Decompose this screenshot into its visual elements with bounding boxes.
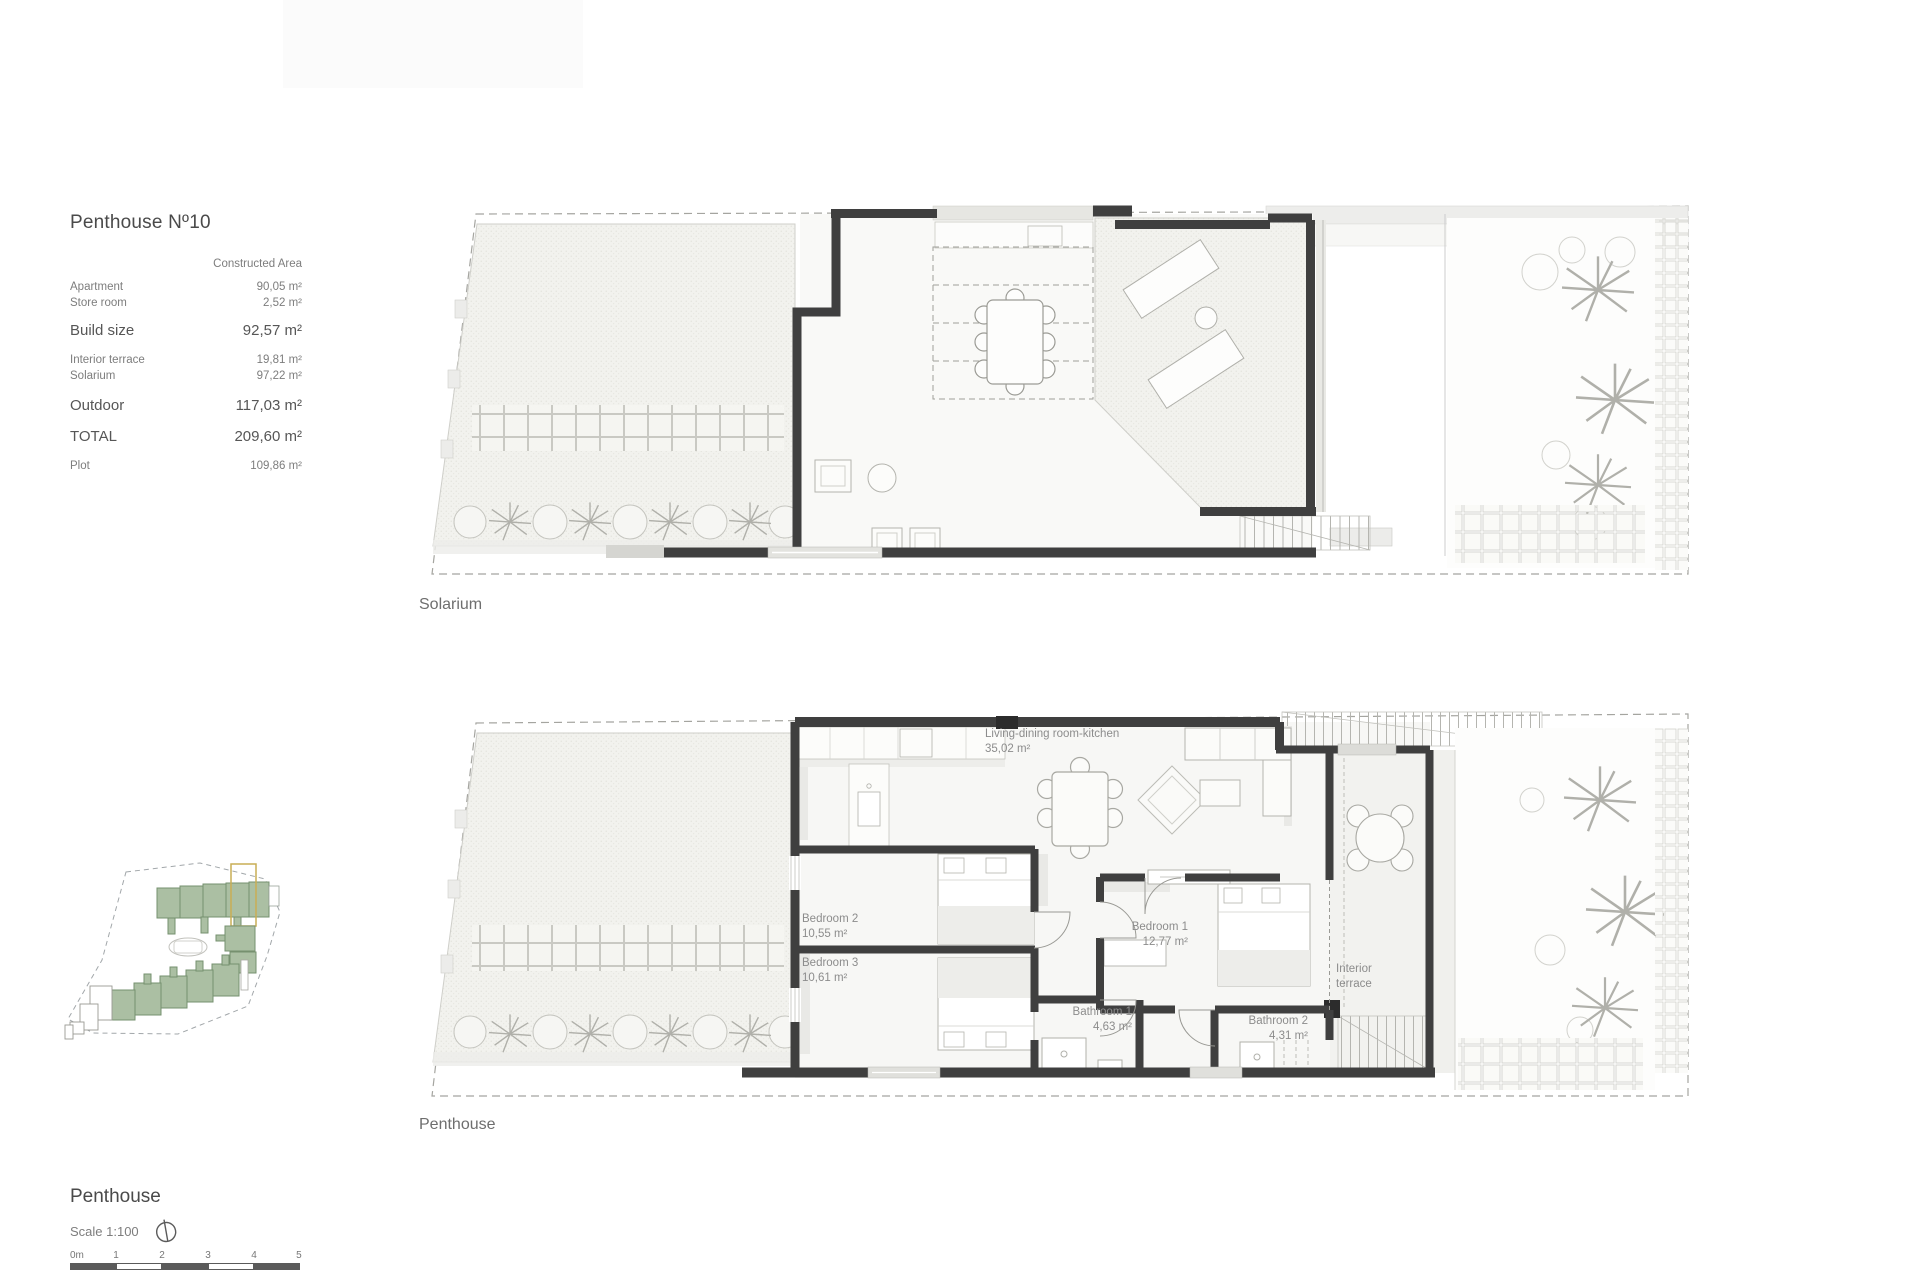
scale-label: Scale 1:100 [70,1224,139,1239]
room-label-bedroom2: Bedroom 2 10,55 m² [802,912,858,942]
table-row: Build size 92,57 m² [70,321,302,340]
room-label-living: Living-dining room-kitchen 35,02 m² [985,727,1119,757]
room-label-interior-terrace: Interior terrace [1336,962,1390,992]
site-small-block [269,886,279,906]
paved-squares [1458,1038,1643,1090]
site-key-map [60,856,304,1088]
scale-bar-segments [70,1263,300,1270]
scale-bar: 0m 1 2 3 4 5 [70,1250,300,1272]
stone-paving [1655,218,1688,570]
dining-table [975,289,1055,395]
roof-garden-area [433,224,795,554]
page-title: Penthouse Nº10 [70,212,302,234]
penthouse-caption: Penthouse [419,1116,496,1134]
stone-paving [1655,728,1688,1073]
planter-grid [472,405,784,451]
scan-artifact [283,0,583,88]
site-thin-strip [241,960,248,990]
room-label-bathroom1: Bathroom 1 4,63 m² [1052,1005,1132,1035]
scale-bar-labels: 0m 1 2 3 4 5 [70,1250,300,1262]
plan-title: Penthouse [70,1186,330,1208]
table-row: Store room 2,52 m² [70,295,302,311]
car-outline [169,938,207,956]
garden-area [1447,218,1688,570]
bed-bedroom2 [938,854,1034,944]
table-row: Plot 109,86 m² [70,458,302,474]
room-label-bathroom2: Bathroom 2 4,31 m² [1226,1014,1308,1044]
penthouse-plan-drawing [418,706,1692,1106]
table-row: Interior terrace 19,81 m² [70,352,302,368]
bed-bedroom3 [938,958,1034,1050]
garden-area [1430,728,1688,1090]
room-label-bedroom3: Bedroom 3 10,61 m² [802,956,858,986]
garden-hatched-area [433,733,795,1066]
staircase [1240,516,1370,550]
paved-squares [1455,505,1645,563]
solarium-plan-drawing [418,200,1692,592]
planter-grid [472,925,784,971]
table-row: Outdoor 117,03 m² [70,396,302,415]
title-block: Penthouse Scale 1:100 0m 1 2 3 4 5 [70,1186,330,1272]
north-arrow-icon [153,1218,179,1244]
table-row: TOTAL 209,60 m² [70,427,302,446]
area-table-header: Constructed Area [70,258,302,270]
side-corridor [1316,214,1445,556]
table-row: Apartment 90,05 m² [70,279,302,295]
room-label-bedroom1: Bedroom 1 12,77 m² [1102,920,1188,950]
info-panel: Penthouse Nº10 Constructed Area Apartmen… [70,212,302,474]
building-blocks-bottom-row [110,955,239,1020]
table-row: Solarium 97,22 m² [70,368,302,384]
floor-plan-sheet: Penthouse Nº10 Constructed Area Apartmen… [0,0,1920,1280]
solarium-caption: Solarium [419,596,482,614]
bed-bedroom1 [1218,884,1310,986]
